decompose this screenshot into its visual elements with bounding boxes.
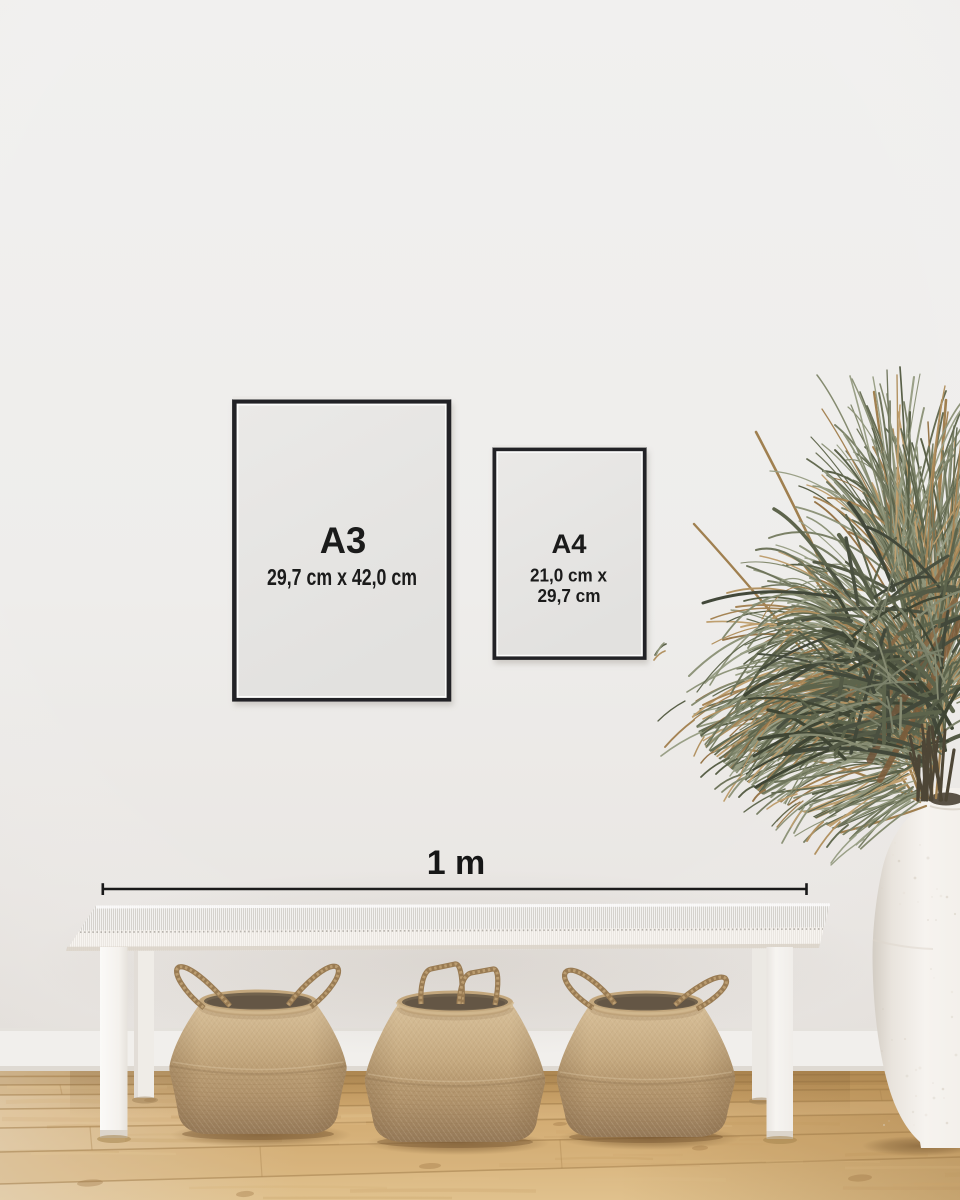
svg-text:29,7 cm x 42,0 cm: 29,7 cm x 42,0 cm: [267, 564, 417, 590]
svg-text:21,0 cm x: 21,0 cm x: [530, 566, 607, 586]
svg-text:29,7 cm: 29,7 cm: [538, 586, 601, 606]
svg-text:A4: A4: [552, 529, 587, 559]
svg-text:A3: A3: [320, 520, 367, 561]
